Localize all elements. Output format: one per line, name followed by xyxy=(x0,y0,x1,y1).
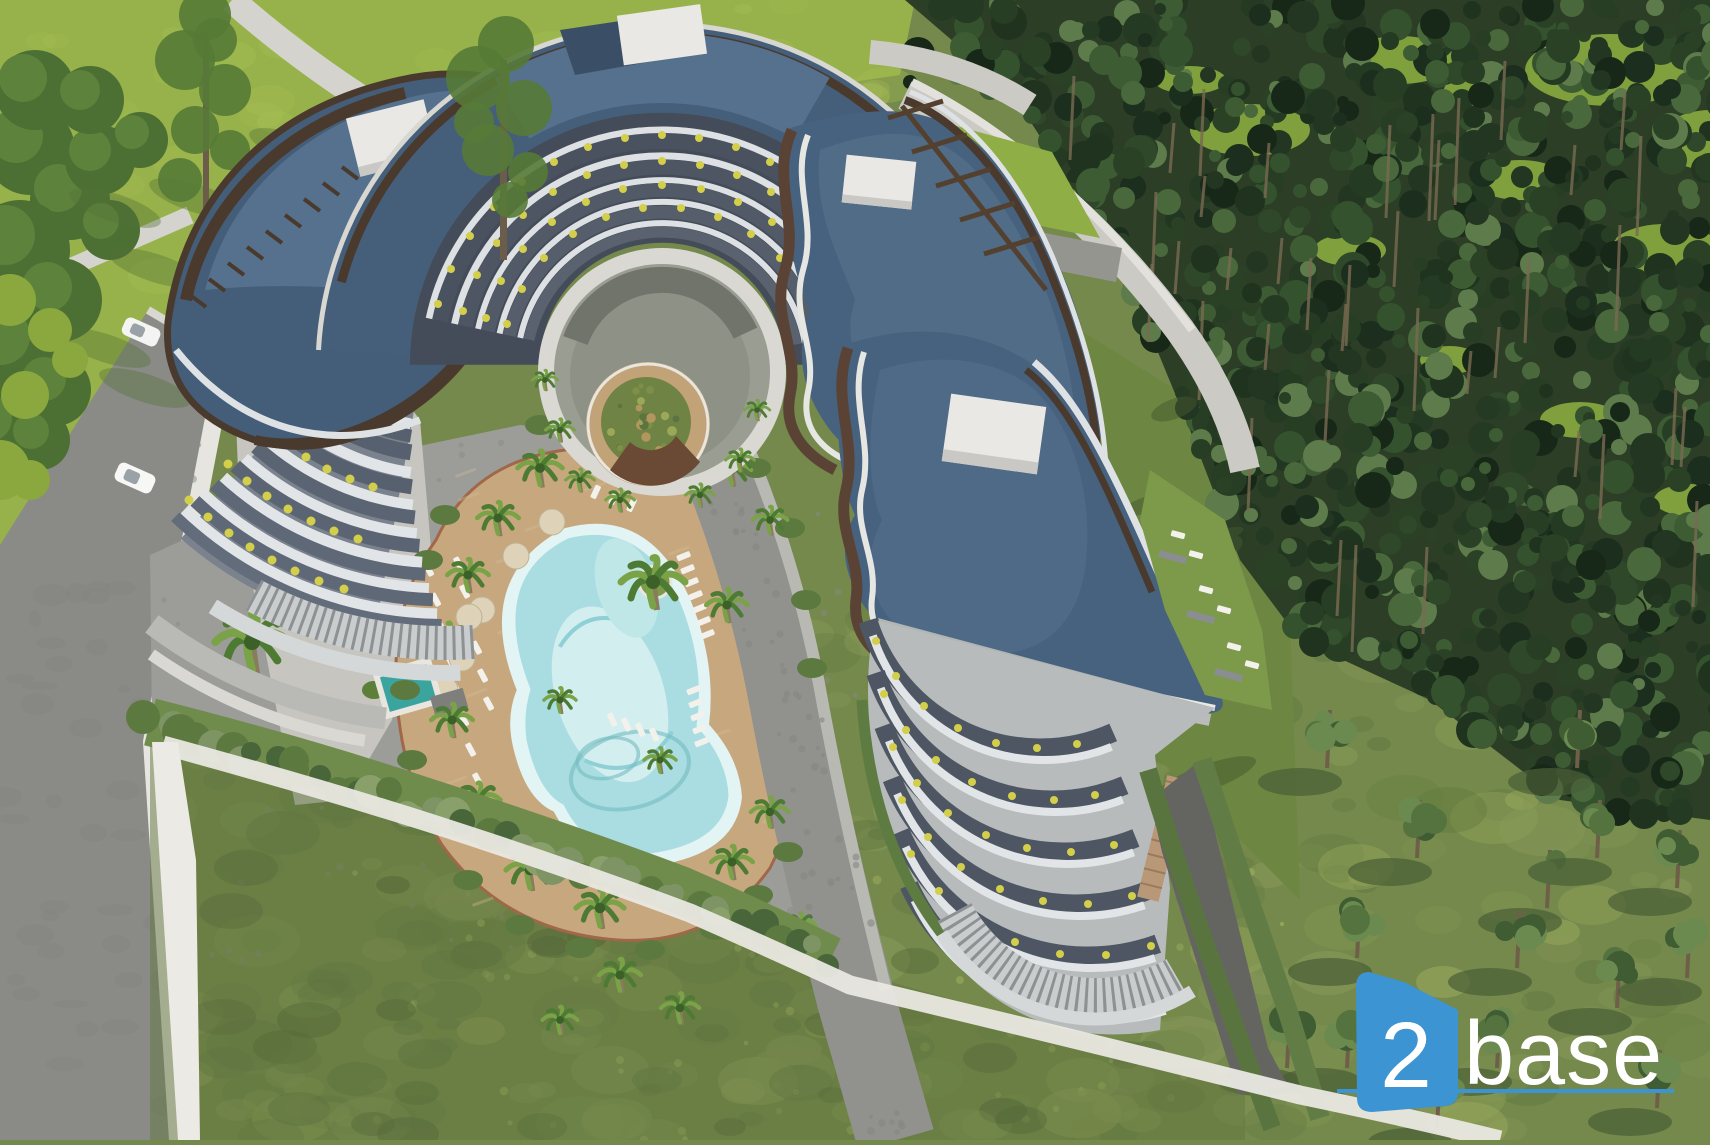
svg-text:2: 2 xyxy=(1380,1003,1432,1107)
svg-text:base: base xyxy=(1464,1004,1663,1104)
